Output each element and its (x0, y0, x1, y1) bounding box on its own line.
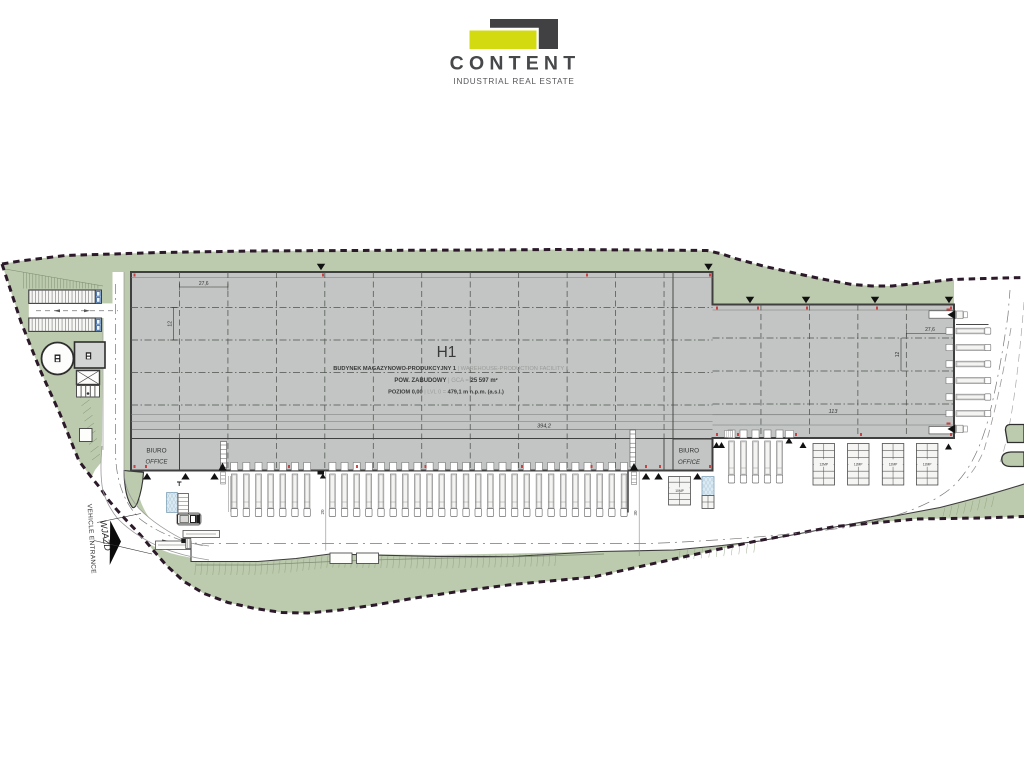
svg-text:H1: H1 (437, 344, 457, 361)
svg-text:BIURO: BIURO (679, 448, 699, 455)
svg-text:POZIOM 0,00 | LVL 0 = 479,1 m: POZIOM 0,00 | LVL 0 = 479,1 m n.p.m. (a.… (388, 390, 504, 396)
svg-text:12: 12 (168, 321, 174, 327)
svg-text:113: 113 (829, 409, 839, 415)
svg-text:12MP: 12MP (854, 462, 863, 466)
svg-text:OFFICE: OFFICE (146, 460, 169, 466)
svg-text:394,2: 394,2 (537, 424, 551, 430)
svg-text:BIURO: BIURO (146, 448, 166, 455)
svg-text:12MP: 12MP (923, 462, 932, 466)
svg-text:INDUSTRIAL REAL ESTATE: INDUSTRIAL REAL ESTATE (453, 77, 574, 86)
svg-text:CONTENT: CONTENT (450, 53, 581, 75)
svg-text:30: 30 (633, 510, 638, 516)
svg-text:20: 20 (320, 509, 325, 515)
svg-text:OFFICE: OFFICE (678, 460, 701, 466)
svg-text:10MP: 10MP (675, 489, 684, 493)
svg-text:BUDYNEK MAGAZYNOWO-PRODUKCYJNY: BUDYNEK MAGAZYNOWO-PRODUKCYJNY 1 | WAREH… (333, 366, 569, 372)
svg-text:POW. ZABUDOWY | GCA = 25 597 m: POW. ZABUDOWY | GCA = 25 597 m² (394, 377, 497, 384)
svg-text:12MP: 12MP (889, 462, 898, 466)
svg-text:27,6: 27,6 (199, 281, 209, 287)
svg-text:27,6: 27,6 (925, 327, 935, 333)
svg-text:12MP: 12MP (819, 462, 828, 466)
svg-text:12: 12 (895, 352, 901, 358)
